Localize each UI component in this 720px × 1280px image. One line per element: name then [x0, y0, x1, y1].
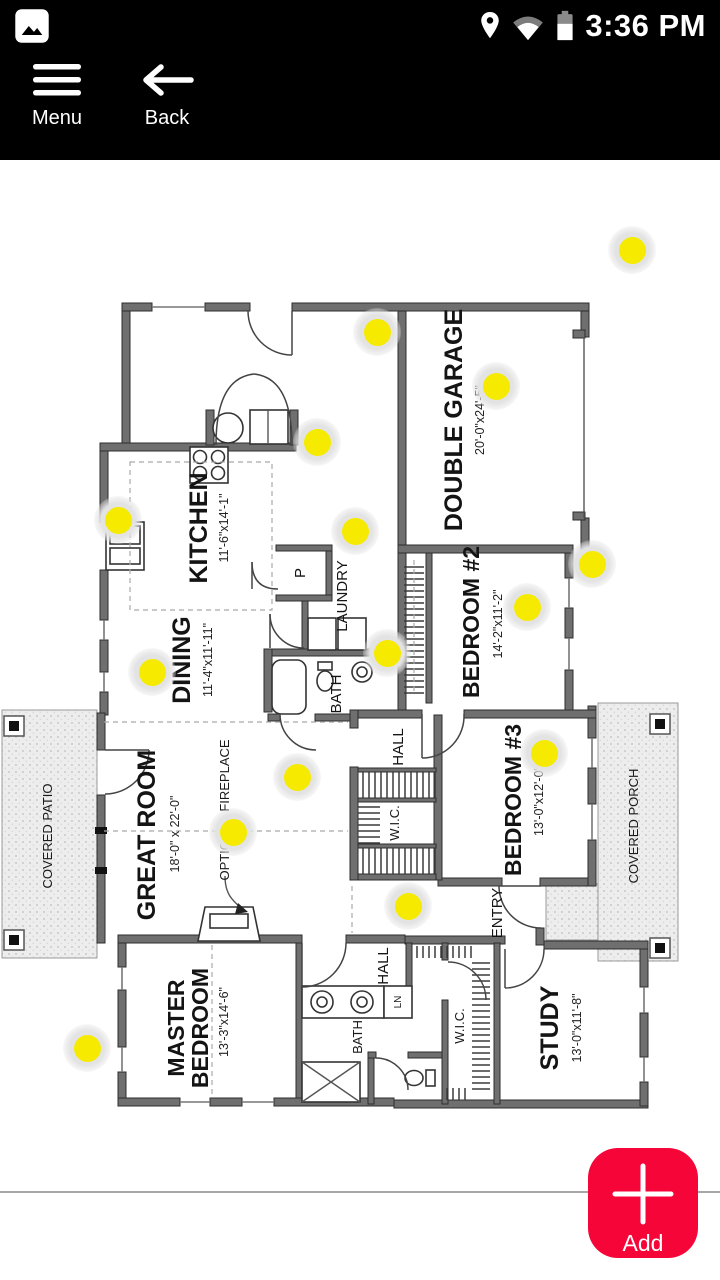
map-marker[interactable]: [608, 226, 656, 274]
room-label-kitchen: KITCHEN: [185, 472, 213, 583]
app-screen: 3:36 PM Menu Back: [0, 0, 720, 1280]
covered-porch-slab: [546, 703, 678, 961]
room-label-study: STUDY: [536, 985, 564, 1070]
label-covered-patio: COVERED PATIO: [40, 784, 55, 889]
map-marker[interactable]: [209, 808, 257, 856]
floorplan-fixtures: [106, 374, 435, 1102]
map-marker[interactable]: [331, 507, 379, 555]
room-dims-kitchen: 11'-6"x14'-1": [217, 493, 231, 562]
label-covered-porch: COVERED PORCH: [626, 769, 641, 884]
map-marker[interactable]: [472, 362, 520, 410]
room-label-garage: DOUBLE GARAGE: [440, 309, 468, 531]
map-marker[interactable]: [503, 583, 551, 631]
room-label-great-room: GREAT ROOM: [133, 750, 161, 920]
map-marker[interactable]: [353, 308, 401, 356]
room-label-wic-upper: W.I.C.: [387, 805, 402, 840]
room-label-bedroom2: BEDROOM #2: [458, 546, 484, 698]
map-marker[interactable]: [63, 1024, 111, 1072]
room-label-bath-upper: BATH: [328, 675, 345, 714]
room-dims-dining: 11'-4"x11'-11": [201, 623, 215, 697]
room-label-bath-lower: BATH: [350, 1020, 365, 1054]
room-label-entry: ENTRY: [489, 888, 506, 939]
room-label-laundry: LAUNDRY: [334, 560, 351, 631]
add-label: Add: [623, 1230, 664, 1257]
room-label-hall-upper: HALL: [390, 728, 407, 766]
room-label-master-line1: MASTER: [163, 979, 189, 1077]
map-marker[interactable]: [363, 629, 411, 677]
add-button[interactable]: Add: [588, 1148, 698, 1258]
room-label-pantry: P: [292, 568, 309, 578]
room-dims-master: 13'-3"x14'-6": [217, 987, 231, 1057]
map-marker[interactable]: [568, 540, 616, 588]
plus-icon: [605, 1156, 681, 1232]
room-label-wic-lower: W.I.C.: [452, 1008, 467, 1043]
floorplan-image[interactable]: DOUBLE GARAGE 20'-0"x24'-5" KITCHEN 11'-…: [0, 0, 720, 1280]
map-marker[interactable]: [520, 729, 568, 777]
room-label-hall-lower: HALL: [375, 947, 392, 985]
map-marker[interactable]: [273, 753, 321, 801]
map-marker[interactable]: [384, 882, 432, 930]
room-dims-study: 13'-0"x11'-8": [570, 993, 584, 1062]
room-label-master-line2: BEDROOM: [187, 968, 213, 1088]
room-dims-great-room: 18'-0" x 22'-0": [168, 796, 182, 873]
map-marker[interactable]: [94, 496, 142, 544]
map-marker[interactable]: [128, 648, 176, 696]
map-marker[interactable]: [293, 418, 341, 466]
room-label-linen: LN: [393, 996, 404, 1009]
